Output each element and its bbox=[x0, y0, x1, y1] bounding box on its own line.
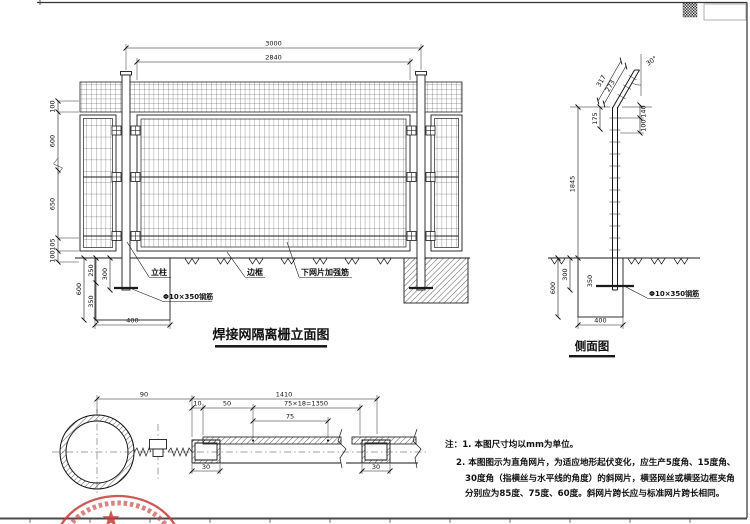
dim-v2: 600 bbox=[49, 135, 57, 147]
label-frame: 边框 bbox=[246, 267, 263, 277]
dim-overall-detail: 1410 bbox=[276, 391, 293, 399]
elevation-view: 3000 2840 100 600 650 105 100 600 250 35… bbox=[49, 40, 471, 348]
dim-width: 400 bbox=[594, 317, 606, 325]
dim-v3: 650 bbox=[49, 198, 57, 210]
dim-inner: 2840 bbox=[265, 54, 282, 62]
label-rebar: Φ10×350钢筋 bbox=[163, 292, 213, 301]
left-post-cap bbox=[121, 72, 132, 76]
title-block-box bbox=[704, 4, 746, 20]
connection-detail: 90 1410 10 50 75×18=1350 75 30 30 bbox=[52, 391, 428, 497]
dim-b: 50 bbox=[223, 400, 231, 408]
dim-fd250: 250 bbox=[87, 264, 95, 276]
mesh-top-band bbox=[80, 82, 462, 112]
elevation-title-underline bbox=[215, 345, 327, 348]
elevation-top-dims: 3000 2840 bbox=[126, 40, 421, 81]
right-post-cap bbox=[416, 72, 427, 76]
rail-strip-1 bbox=[203, 437, 341, 444]
dim-hole: 75 bbox=[286, 413, 294, 421]
dim-v1: 100 bbox=[49, 100, 57, 112]
drawing-sheet: 3000 2840 100 600 650 105 100 600 250 35… bbox=[0, 0, 750, 524]
dim-top-b: 100 bbox=[640, 119, 648, 131]
dim-spacing: 75×18=1350 bbox=[284, 400, 328, 408]
dim-angle: 30° bbox=[645, 54, 659, 67]
label-bottom-rib: 下网片加强筋 bbox=[301, 267, 349, 277]
side-title-underline bbox=[569, 355, 615, 357]
left-post bbox=[122, 75, 130, 290]
dim-left: 90 bbox=[140, 391, 148, 399]
dim-overall: 3000 bbox=[265, 40, 282, 48]
dim-fd600: 600 bbox=[75, 283, 83, 295]
dim-tube2: 30 bbox=[372, 463, 380, 471]
dim-top-a: 140 bbox=[640, 105, 648, 117]
dim-v4: 105 bbox=[49, 238, 57, 250]
right-post bbox=[417, 75, 425, 290]
side-label-rebar: Φ10×350钢筋 bbox=[649, 289, 699, 298]
qr-code-icon bbox=[683, 3, 697, 17]
dim-fd300: 300 bbox=[101, 268, 109, 280]
detail-dims: 90 1410 10 50 75×18=1350 75 30 30 bbox=[97, 391, 390, 475]
dim-height: 1845 bbox=[569, 176, 577, 193]
break-mark-2 bbox=[413, 429, 421, 468]
dim-rebar-len: 350 bbox=[586, 275, 594, 287]
company-stamp bbox=[55, 496, 181, 524]
bolt-assembly bbox=[134, 440, 192, 457]
elevation-title: 焊接网隔离栅立面图 bbox=[212, 327, 329, 343]
side-foundation bbox=[578, 258, 623, 317]
dim-tube1: 30 bbox=[202, 463, 210, 471]
right-foundation bbox=[404, 258, 468, 303]
note-line-1: 注：1. 本图尺寸均以mm为单位。 bbox=[445, 438, 578, 450]
notes-block: 注：1. 本图尺寸均以mm为单位。 2. 本图图示为直角网片，为适应地形起伏变化… bbox=[445, 438, 735, 499]
break-mark-1 bbox=[338, 429, 346, 468]
side-view: 30° 317 273 175 140 100 1845 350 Φ10×350… bbox=[548, 54, 700, 357]
ground-hatch bbox=[185, 259, 391, 265]
note-line-3: 30度角（指横丝与水平线的角度）的斜网片，横竖网丝或横竖边框夹角 bbox=[465, 472, 735, 484]
drawing-canvas: 3000 2840 100 600 650 105 100 600 250 35… bbox=[0, 0, 750, 524]
elevation-left-dims: 100 600 650 105 100 bbox=[49, 100, 80, 262]
post-hooks bbox=[610, 118, 621, 250]
dim-embed: 300 bbox=[561, 268, 569, 280]
label-post: 立柱 bbox=[151, 267, 167, 277]
dim-v5: 100 bbox=[49, 250, 57, 262]
post-bend bbox=[613, 70, 640, 108]
note-line-4: 分别应为85度、75度、60度。斜网片跨长应与标准网片跨长相同。 bbox=[465, 487, 724, 499]
rail-strip-2 bbox=[352, 437, 416, 444]
dim-fd400: 400 bbox=[126, 317, 138, 325]
dim-offset: 175 bbox=[591, 112, 599, 124]
note-line-2: 2. 本图图示为直角网片，为适应地形起伏变化，应生产5度角、15度角、 bbox=[456, 456, 735, 468]
stamp-star-icon bbox=[102, 510, 119, 524]
dim-fd350: 350 bbox=[87, 295, 95, 307]
side-title: 侧面图 bbox=[575, 339, 610, 353]
dim-a: 10 bbox=[193, 400, 201, 408]
dim-depth: 600 bbox=[549, 282, 557, 294]
